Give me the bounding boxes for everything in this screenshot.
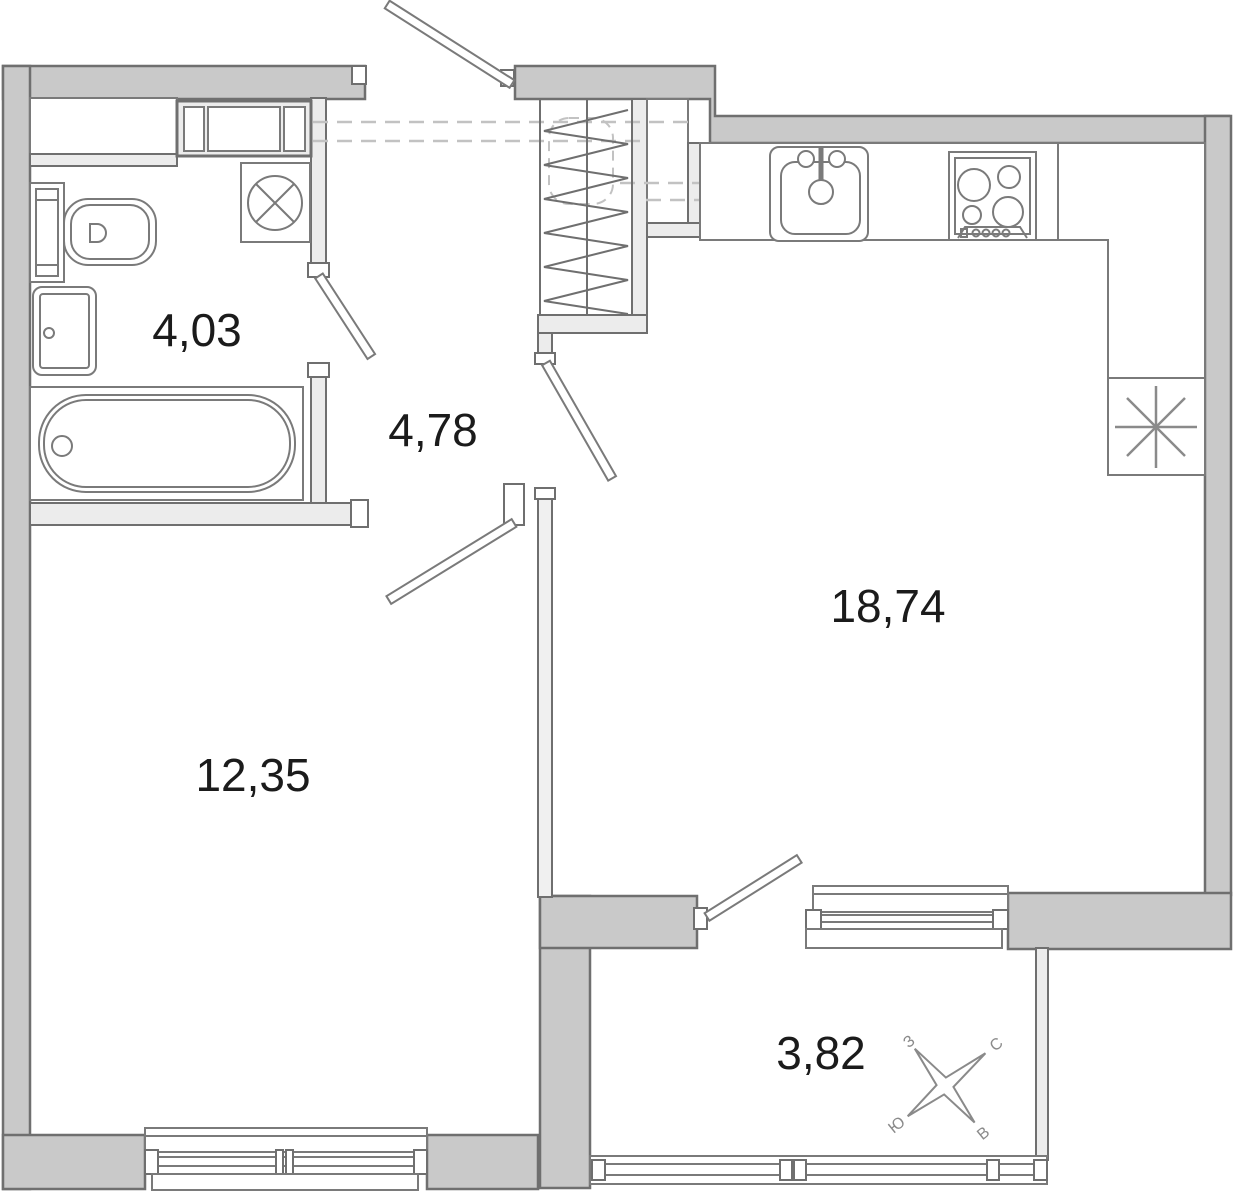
- ventilation-shaft-base: [647, 223, 703, 237]
- balcony-door-leaf: [705, 855, 802, 921]
- bathroom-shelf-edge: [30, 154, 177, 166]
- room-window-cap-right: [414, 1150, 427, 1174]
- balcony-window-sill: [806, 929, 1002, 948]
- floor-plan: 4,03 4,78 18,74 12,35 3,82 С З Ю В: [0, 0, 1235, 1191]
- bathtub: [30, 387, 303, 500]
- stove: [949, 152, 1036, 240]
- room-door-jamb-left: [351, 500, 368, 527]
- balcony-door: [694, 855, 802, 929]
- room-area-label: 12,35: [195, 749, 310, 801]
- partition-bathroom-lower: [311, 377, 326, 503]
- entrance-door-leaf: [385, 1, 515, 88]
- balcony-area-label: 3,82: [776, 1027, 866, 1079]
- kitchen: [700, 143, 1205, 475]
- living-room-door: [542, 361, 616, 481]
- room-window: [145, 1128, 427, 1190]
- cabinet-door-3: [284, 107, 305, 151]
- faucet-spout: [809, 180, 833, 204]
- toilet: [30, 183, 156, 282]
- balcony-window: [806, 886, 1008, 948]
- room-window-board: [145, 1128, 427, 1152]
- balcony-glazing-mullion-1: [780, 1160, 792, 1180]
- balcony-door-jamb: [694, 908, 707, 929]
- living-door-jamb-top: [535, 353, 555, 364]
- entry-niche: [647, 99, 688, 223]
- compass-north-label: С: [987, 1035, 1007, 1055]
- partition-hall-living-upper: [538, 333, 552, 355]
- balcony-wall-right: [1036, 948, 1048, 1160]
- fridge: [1108, 378, 1205, 475]
- wardrobe: [540, 99, 632, 315]
- fridge-snowflake-icon: [1115, 386, 1197, 468]
- bathroom-area-label: 4,03: [152, 304, 242, 356]
- bathroom-door-jamb-bottom: [308, 363, 329, 377]
- wall-right: [1205, 116, 1231, 895]
- living-room-door-leaf: [542, 361, 616, 481]
- room-window-cap-left: [145, 1150, 158, 1174]
- balcony-glazing-cap-left: [592, 1160, 605, 1180]
- wall-top-left: [3, 66, 365, 99]
- living-door-jamb-bottom: [535, 488, 555, 499]
- balcony-glazing-cap-right: [1034, 1160, 1047, 1180]
- balcony-window-board: [813, 886, 1008, 912]
- partition-wardrobe-right: [632, 99, 647, 333]
- entrance-jamb-left: [352, 66, 366, 84]
- wall-living-balcony: [540, 896, 697, 948]
- hallway-area-label: 4,78: [388, 404, 478, 456]
- floor-plan-canvas: 4,03 4,78 18,74 12,35 3,82 С З Ю В: [0, 0, 1235, 1191]
- balcony-glazing-mullion-3: [987, 1160, 999, 1180]
- compass-east-label: В: [974, 1124, 993, 1144]
- washing-machine: [241, 163, 310, 242]
- balcony-window-cap-left: [806, 910, 821, 929]
- bathroom-door-leaf: [315, 274, 375, 359]
- room-door-jamb-hinge: [504, 484, 524, 525]
- partition-hall-room: [30, 503, 367, 525]
- wall-living-bottom-right: [1008, 893, 1231, 949]
- partition-room-living: [538, 499, 552, 897]
- faucet-knob-left: [798, 151, 814, 167]
- balcony-window-cap-right: [993, 910, 1008, 929]
- sink-outer: [33, 287, 96, 375]
- room-window-mullion-2: [286, 1150, 293, 1174]
- cabinet-door-2: [208, 107, 280, 151]
- room-window-mullion-1: [276, 1150, 283, 1174]
- wall-top-right: [515, 66, 1229, 143]
- bathroom-cabinet: [177, 101, 311, 156]
- wall-bottom-left-of-window: [3, 1135, 145, 1189]
- balcony-glazing-frame: [590, 1156, 1047, 1184]
- wall-left: [3, 66, 30, 1189]
- cabinet-door-1: [184, 107, 204, 151]
- bathroom-door: [315, 274, 375, 359]
- wall-bottom-right-of-window: [427, 1135, 538, 1189]
- room-door-leaf: [386, 519, 516, 604]
- entrance-door: [352, 1, 514, 88]
- kitchen-sink: [770, 147, 868, 241]
- compass-south-label: Ю: [885, 1114, 908, 1137]
- bathroom-fixtures: [30, 98, 311, 500]
- room-window-sill: [152, 1174, 418, 1190]
- faucet-knob-right: [829, 151, 845, 167]
- bathroom-shelf: [30, 98, 177, 154]
- bathroom-sink: [33, 287, 96, 375]
- balcony-glazing-mullion-2: [794, 1160, 806, 1180]
- partition-wardrobe-bottom: [538, 315, 647, 333]
- bathroom-door-jamb-top: [308, 263, 329, 277]
- room-door: [386, 519, 516, 604]
- kitchen-living-area-label: 18,74: [830, 580, 945, 632]
